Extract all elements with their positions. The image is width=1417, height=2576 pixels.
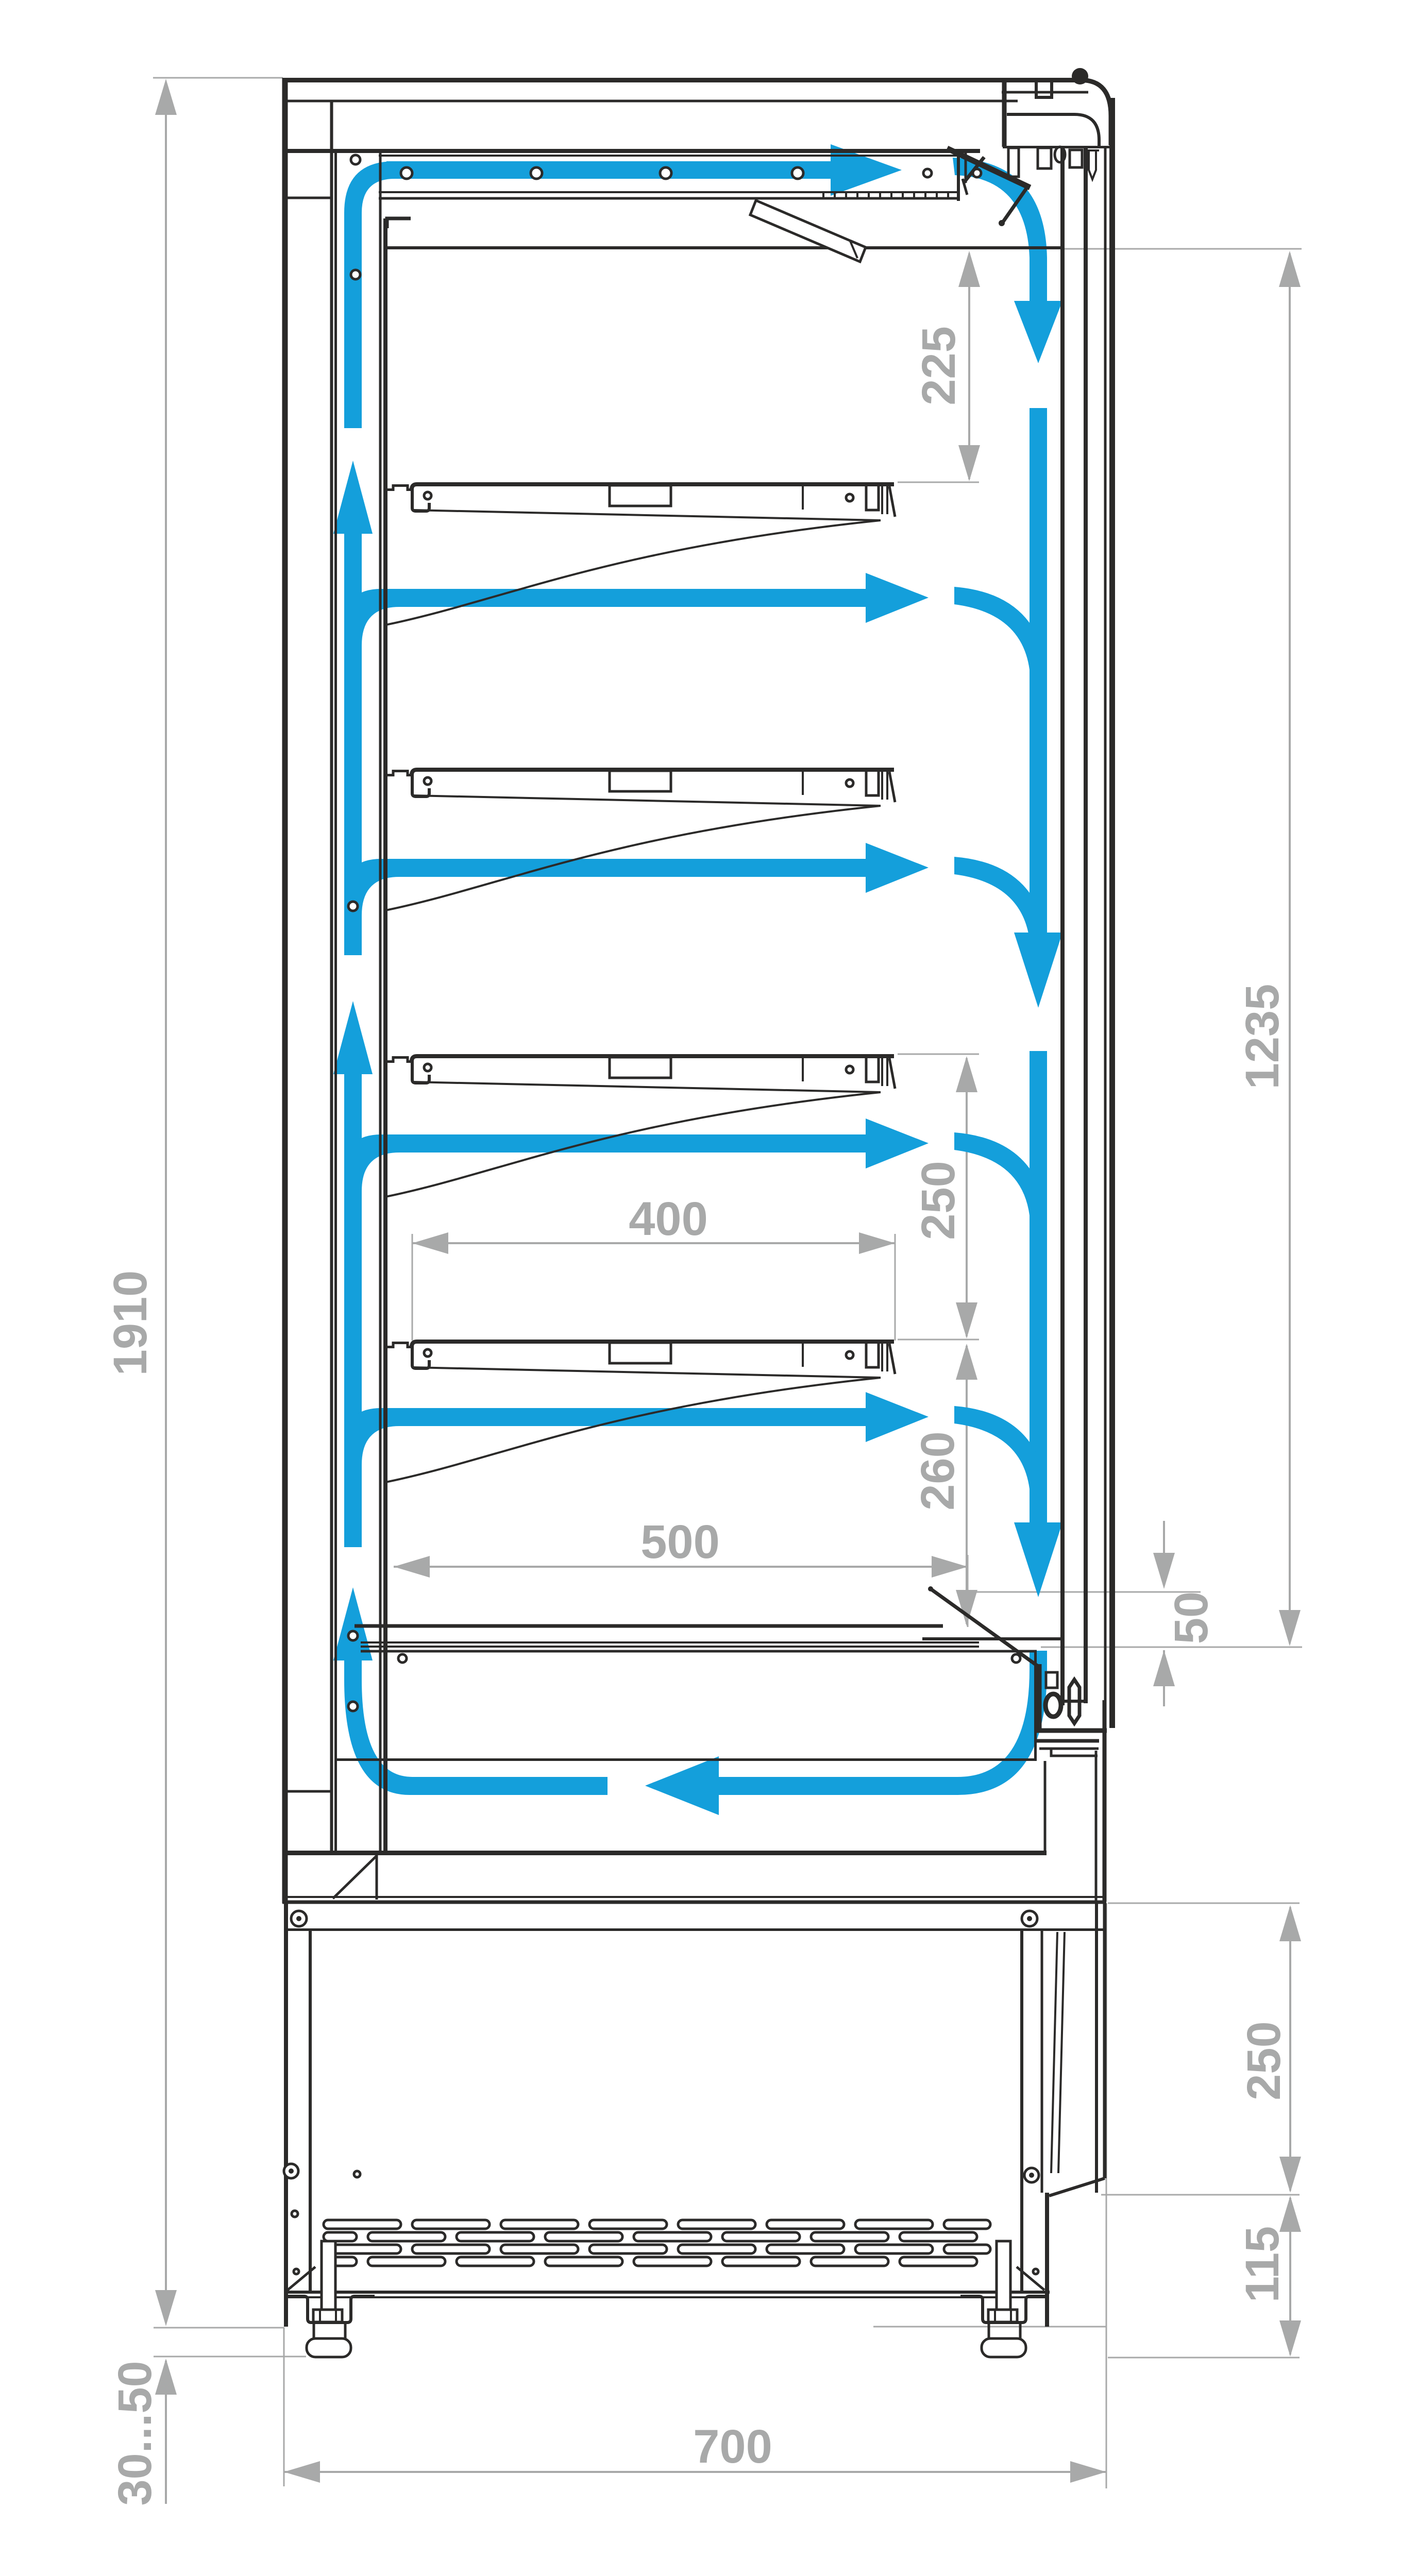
svg-text:115: 115 <box>1236 2226 1289 2302</box>
svg-text:1910: 1910 <box>104 1270 157 1376</box>
svg-text:400: 400 <box>629 1193 708 1245</box>
svg-text:700: 700 <box>693 2420 772 2473</box>
svg-text:250: 250 <box>912 1161 965 1240</box>
svg-text:260: 260 <box>912 1431 964 1511</box>
svg-text:30...50: 30...50 <box>109 2361 161 2505</box>
svg-text:1235: 1235 <box>1236 984 1289 1090</box>
svg-text:500: 500 <box>640 1516 720 1568</box>
svg-text:225: 225 <box>913 326 965 405</box>
svg-text:250: 250 <box>1238 2021 1290 2100</box>
svg-text:50: 50 <box>1165 1591 1218 1644</box>
